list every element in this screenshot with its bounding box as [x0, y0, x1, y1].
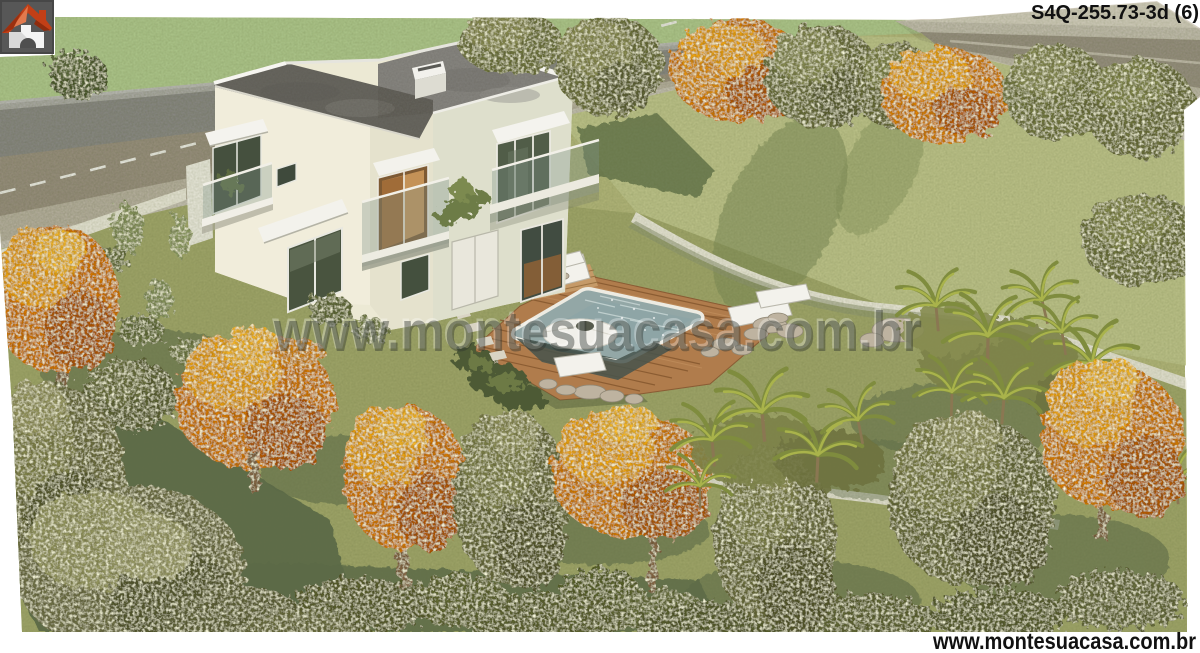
svg-text:www.montesuacasa.com.br: www.montesuacasa.com.br [273, 301, 922, 364]
svg-text:www.montesuacasa.com.br: www.montesuacasa.com.br [932, 628, 1196, 653]
svg-text:S4Q-255.73-3d (6): S4Q-255.73-3d (6) [1031, 1, 1199, 24]
